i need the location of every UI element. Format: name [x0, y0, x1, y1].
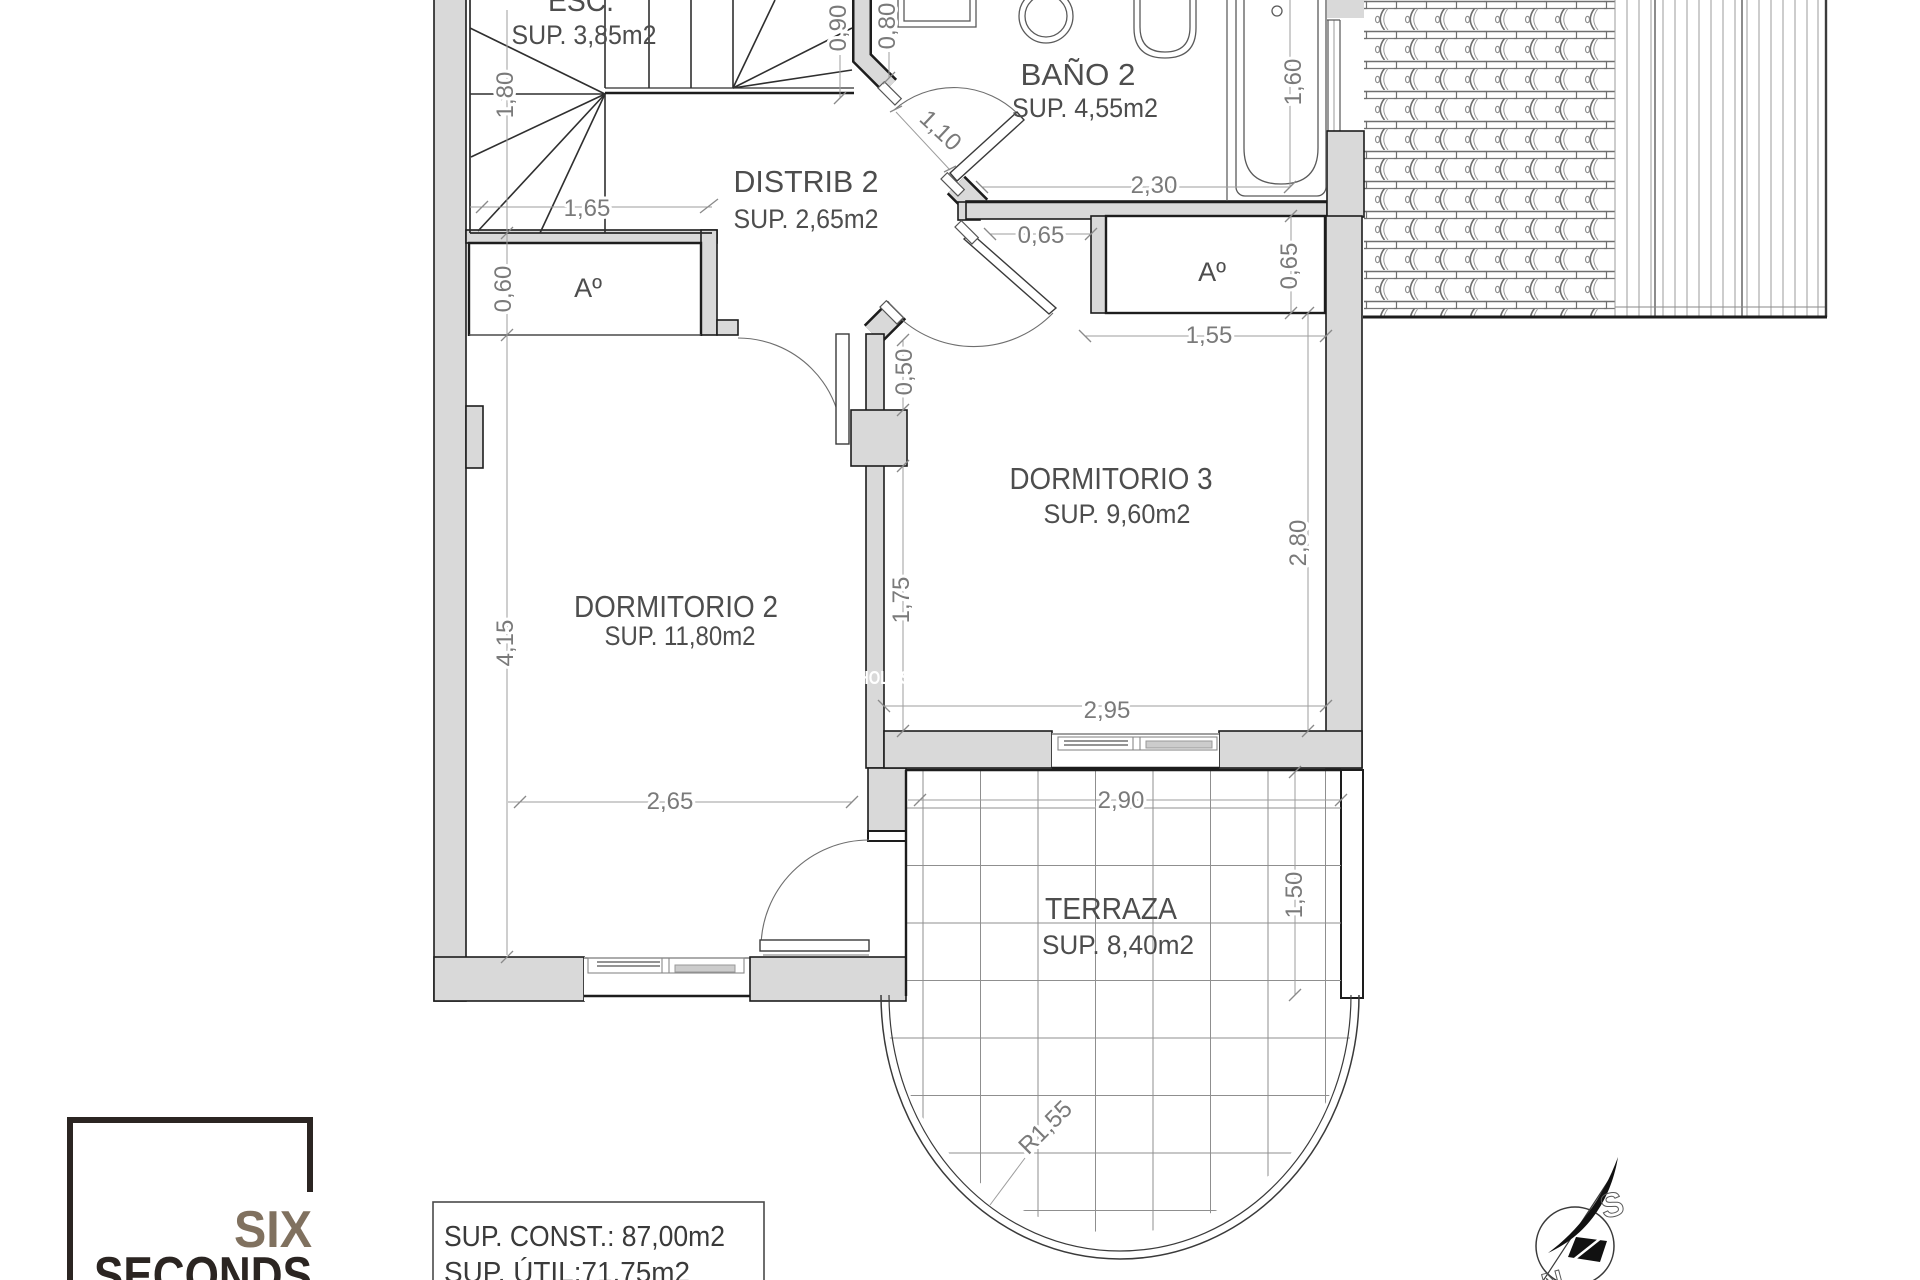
svg-text:ESC.: ESC.: [548, 0, 614, 18]
svg-text:2,30: 2,30: [1131, 172, 1178, 199]
svg-text:S: S: [1596, 1184, 1628, 1227]
svg-text:2,80: 2,80: [1285, 520, 1312, 567]
svg-text:SUP. ÚTIL:71,75m2: SUP. ÚTIL:71,75m2: [444, 1256, 690, 1280]
svg-text:1,50: 1,50: [1281, 872, 1308, 919]
svg-text:SUP. 4,55m2: SUP. 4,55m2: [1012, 93, 1158, 123]
svg-text:0,50: 0,50: [891, 349, 918, 396]
svg-text:DORMITORIO 3: DORMITORIO 3: [1010, 461, 1213, 496]
svg-text:SUP. CONST.: 87,00m2: SUP. CONST.: 87,00m2: [444, 1221, 725, 1253]
svg-text:Aº: Aº: [1198, 257, 1226, 287]
svg-text:0,90: 0,90: [825, 5, 852, 52]
svg-text:DISTRIB 2: DISTRIB 2: [734, 164, 879, 199]
svg-text:TERRAZA: TERRAZA: [1045, 891, 1177, 926]
svg-text:4,15: 4,15: [492, 620, 519, 667]
svg-text:SUP. 2,65m2: SUP. 2,65m2: [734, 204, 879, 234]
svg-text:SUP. 11,80m2: SUP. 11,80m2: [605, 621, 756, 651]
svg-text:SUP. 8,40m2: SUP. 8,40m2: [1042, 930, 1194, 960]
svg-text:2,95: 2,95: [1084, 697, 1131, 724]
svg-text:1,10: 1,10: [914, 105, 967, 157]
svg-text:1,80: 1,80: [492, 72, 519, 119]
svg-text:R1,55: R1,55: [1013, 1095, 1077, 1159]
svg-text:1,75: 1,75: [888, 577, 915, 624]
svg-text:SUP. 9,60m2: SUP. 9,60m2: [1044, 499, 1191, 529]
svg-text:HOLAS: HOLAS: [858, 668, 910, 688]
svg-text:Aº: Aº: [574, 273, 602, 303]
svg-text:SUP. 3,85m2: SUP. 3,85m2: [512, 20, 657, 50]
svg-text:DORMITORIO 2: DORMITORIO 2: [574, 589, 778, 624]
svg-text:0,65: 0,65: [1276, 243, 1303, 290]
svg-text:1,60: 1,60: [1280, 59, 1307, 106]
svg-text:1,65: 1,65: [564, 195, 611, 222]
svg-text:BAÑO 2: BAÑO 2: [1021, 57, 1136, 92]
svg-text:SECONDS: SECONDS: [94, 1247, 312, 1280]
svg-text:0,80: 0,80: [874, 3, 901, 50]
svg-text:2,65: 2,65: [647, 788, 694, 815]
svg-text:1,55: 1,55: [1186, 322, 1233, 349]
svg-text:2,90: 2,90: [1098, 787, 1145, 814]
svg-text:0,65: 0,65: [1018, 222, 1065, 249]
svg-text:0,60: 0,60: [490, 266, 517, 313]
